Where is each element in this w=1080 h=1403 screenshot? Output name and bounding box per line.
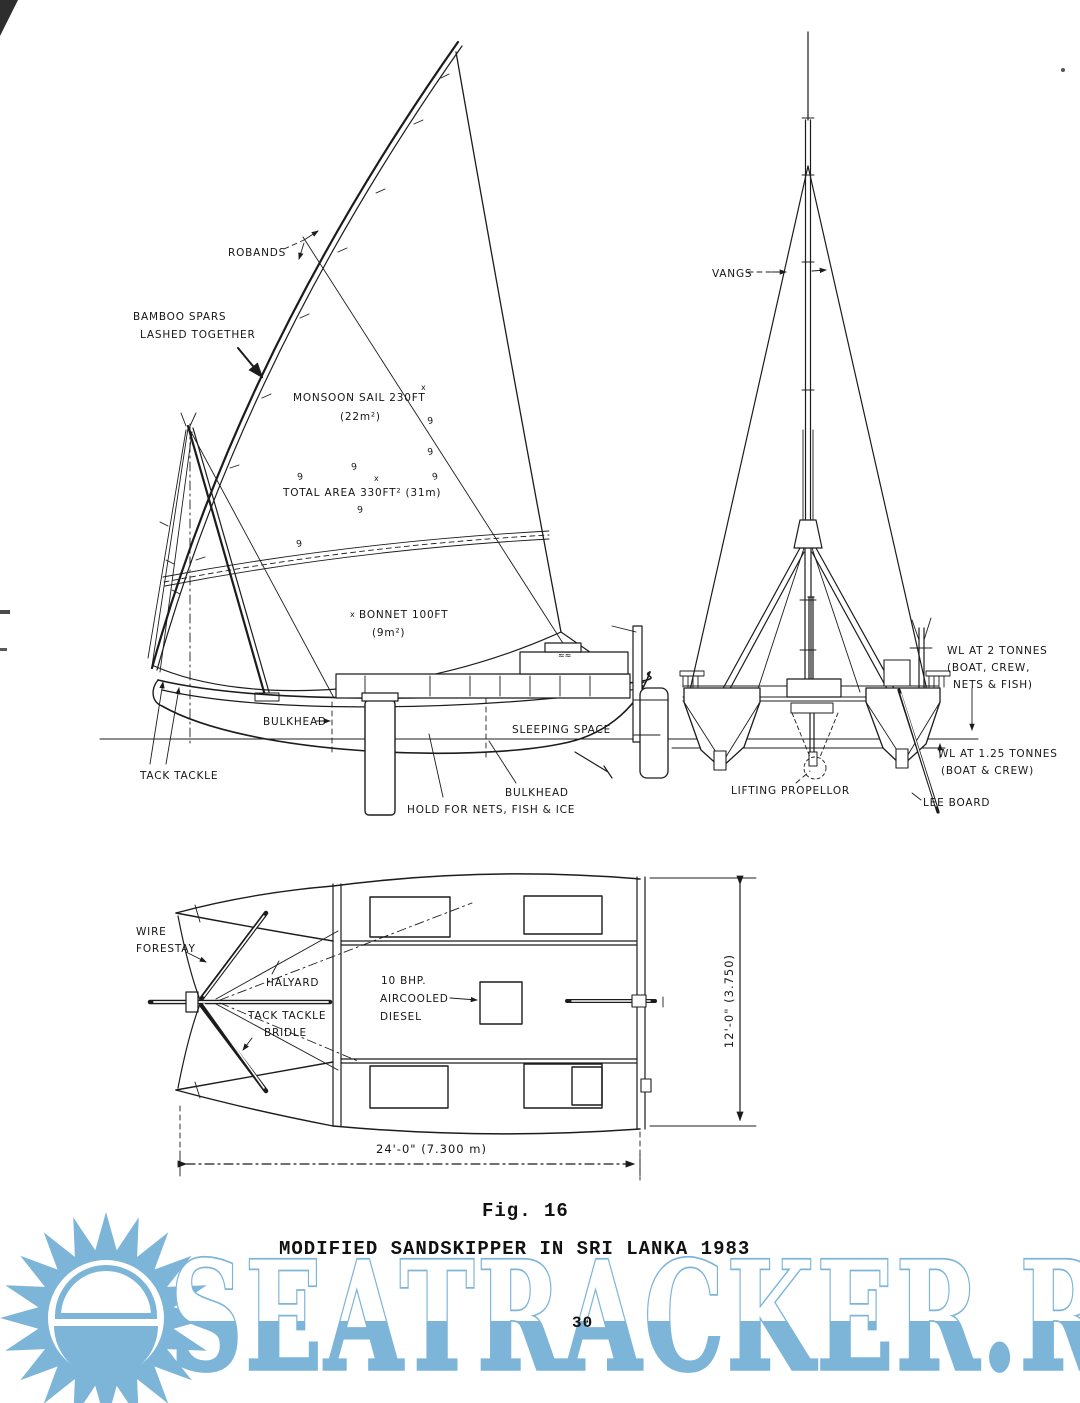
figure-16-drawing: 9 9 9 9 9 9 9 x x x ≈≈ ROBANDS BAMBOO SP… bbox=[0, 0, 1080, 1403]
scanned-page: 9 9 9 9 9 9 9 x x x ≈≈ ROBANDS BAMBOO SP… bbox=[0, 0, 1080, 1403]
hatch-aft-stbd bbox=[524, 1064, 602, 1108]
scan-artifacts bbox=[0, 0, 1065, 651]
label-lifting-propellor: LIFTING PROPELLOR bbox=[731, 785, 850, 797]
yard-spar bbox=[152, 42, 462, 670]
beam-dimension bbox=[650, 878, 756, 1126]
svg-text:9: 9 bbox=[296, 539, 304, 550]
backstay-line bbox=[190, 430, 334, 698]
deckhouse bbox=[336, 643, 630, 698]
label-total-area: TOTAL AREA 330FT² (31m) bbox=[282, 487, 441, 499]
hatch-aft-port bbox=[524, 896, 602, 934]
label-bulkhead-aft: BULKHEAD bbox=[505, 787, 569, 799]
mast bbox=[181, 413, 279, 701]
label-tack-tackle: TACK TACKLE bbox=[139, 770, 218, 782]
reef-point-marks: 9 9 9 9 9 9 9 bbox=[296, 416, 441, 550]
engine-box-plan bbox=[480, 982, 522, 1024]
page-number: 30 bbox=[572, 1314, 593, 1332]
label-lee-board: LEE BOARD bbox=[923, 797, 990, 809]
dim-length-text: 24'-0" (7.300 m) bbox=[376, 1142, 487, 1156]
label-wl2-3: NETS & FISH) bbox=[953, 679, 1033, 691]
front-view-leaders bbox=[748, 270, 972, 800]
label-bonnet-2: (9m²) bbox=[372, 627, 405, 639]
label-wl125-1: WL AT 1.25 TONNES bbox=[938, 748, 1058, 760]
port-hull-front bbox=[684, 688, 760, 770]
label-bamboo-spars-1: BAMBOO SPARS bbox=[133, 311, 226, 323]
side-view-drawing: 9 9 9 9 9 9 9 x x x ≈≈ ROBANDS BAMBOO SP… bbox=[100, 42, 978, 816]
front-view-drawing: VANGS WL AT 2 TONNES (BOAT, CREW, NETS &… bbox=[680, 32, 1058, 812]
label-monsoon-sail-1: MONSOON SAIL 230FT bbox=[293, 392, 426, 404]
forestay-lines bbox=[148, 428, 192, 672]
svg-text:9: 9 bbox=[431, 472, 440, 483]
label-engine-1: 10 BHP. bbox=[381, 975, 426, 987]
label-engine-3: DIESEL bbox=[380, 1011, 422, 1023]
svg-text:9: 9 bbox=[351, 462, 359, 473]
steering-tiller bbox=[567, 995, 663, 1007]
hatch-fwd-stbd bbox=[370, 1066, 448, 1108]
label-sleeping-space: SLEEPING SPACE bbox=[512, 724, 611, 736]
footnote-mark-3: x bbox=[350, 610, 355, 619]
footnote-mark-2: x bbox=[374, 474, 379, 483]
label-robands: ROBANDS bbox=[228, 247, 286, 259]
label-bonnet-1: BONNET 100FT bbox=[359, 609, 448, 621]
label-vangs: VANGS bbox=[712, 268, 752, 280]
label-wl2-2: (BOAT, CREW, bbox=[947, 662, 1030, 674]
label-bridle-2: BRIDLE bbox=[264, 1027, 307, 1039]
daggerboard bbox=[362, 693, 398, 815]
engine-box-front bbox=[787, 679, 841, 697]
label-wire-forestay-1: WIRE bbox=[136, 926, 167, 938]
sail-leech bbox=[456, 52, 561, 632]
hatch-fwd-port bbox=[370, 897, 450, 937]
halyard-line bbox=[303, 237, 566, 648]
approx-mark: ≈≈ bbox=[558, 651, 571, 660]
label-wl125-2: (BOAT & CREW) bbox=[941, 765, 1034, 777]
svg-text:9: 9 bbox=[297, 472, 305, 483]
front-mast bbox=[794, 32, 822, 686]
stern-oar-mark bbox=[575, 752, 612, 778]
figure-caption: Fig. 16 bbox=[482, 1200, 569, 1222]
label-halyard: HALYARD bbox=[266, 977, 319, 989]
label-engine-2: AIRCOOLED bbox=[380, 993, 449, 1005]
svg-text:9: 9 bbox=[427, 447, 435, 458]
figure-title: MODIFIED SANDSKIPPER IN SRI LANKA 1983 bbox=[279, 1238, 750, 1260]
label-hold: HOLD FOR NETS, FISH & ICE bbox=[407, 804, 575, 816]
footnote-mark-1: x bbox=[421, 383, 426, 392]
rudder-stock bbox=[884, 618, 932, 688]
label-wl2-1: WL AT 2 TONNES bbox=[947, 645, 1048, 657]
cleat bbox=[641, 1079, 651, 1092]
label-wire-forestay-2: FORESTAY bbox=[136, 943, 196, 955]
rudder-assembly bbox=[612, 626, 668, 778]
plan-view-drawing: WIRE FORESTAY HALYARD TACK TACKLE BRIDLE… bbox=[136, 874, 756, 1180]
svg-text:9: 9 bbox=[427, 416, 435, 427]
label-monsoon-sail-2: (22m²) bbox=[340, 411, 381, 423]
svg-text:9: 9 bbox=[357, 505, 365, 516]
label-bamboo-spars-2: LASHED TOGETHER bbox=[140, 329, 256, 341]
dim-beam-text: 12'-0" (3.750) bbox=[722, 954, 736, 1048]
label-bridle-1: TACK TACKLE bbox=[247, 1010, 326, 1022]
label-bulkhead-fwd: BULKHEAD bbox=[263, 716, 327, 728]
hatch-small bbox=[572, 1067, 602, 1105]
bowsprit bbox=[150, 992, 330, 1012]
